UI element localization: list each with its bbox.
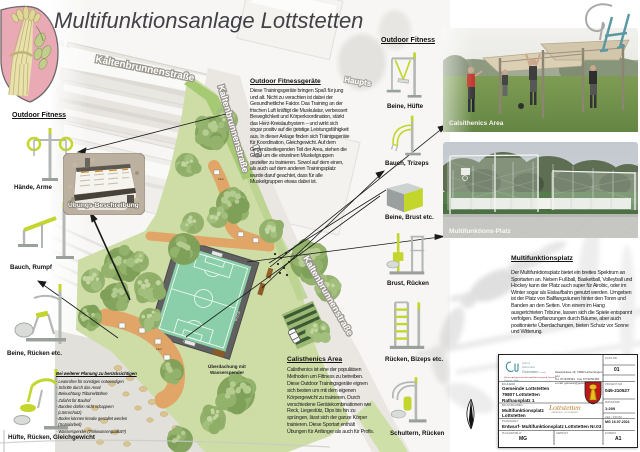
svg-text:Multifunktions-Platz: Multifunktions-Platz <box>449 228 511 235</box>
svg-text:12er: 12er <box>218 177 224 181</box>
svg-text:Calsithenics Area: Calsithenics Area <box>449 120 504 127</box>
svg-text:12er: 12er <box>156 347 162 351</box>
svg-text:Übungs-Beschreibung: Übungs-Beschreibung <box>68 200 139 209</box>
svg-text:Überdachung mit: Überdachung mit <box>208 363 246 369</box>
svg-text:Wasserspender: Wasserspender <box>210 370 244 375</box>
